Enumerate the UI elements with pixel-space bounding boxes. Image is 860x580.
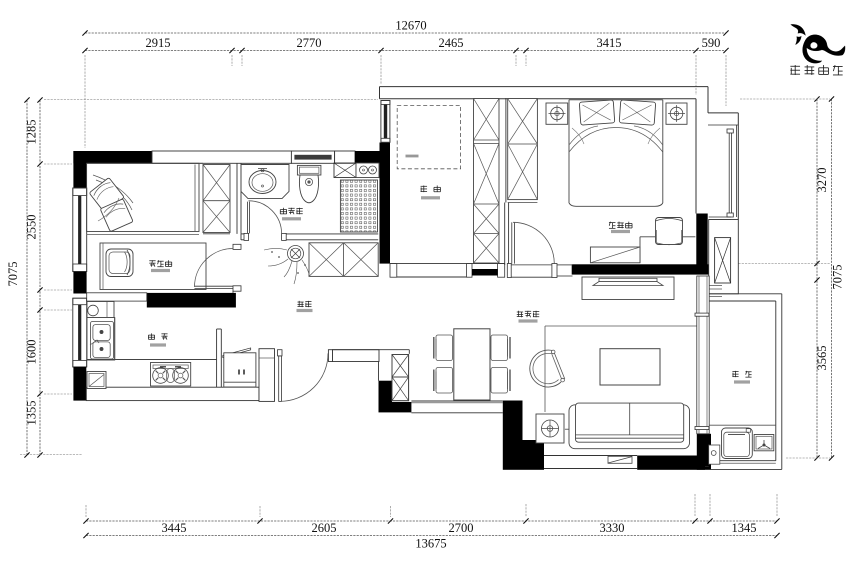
svg-text:3330: 3330 [600,521,625,535]
svg-text:3445: 3445 [162,521,187,535]
svg-text:2700: 2700 [449,521,474,535]
svg-text:7075: 7075 [831,265,845,290]
svg-text:2915: 2915 [146,36,171,50]
svg-text:3565: 3565 [815,346,829,371]
svg-text:1345: 1345 [732,521,757,535]
svg-text:13675: 13675 [415,537,446,551]
svg-text:2605: 2605 [312,521,337,535]
svg-text:3415: 3415 [597,36,622,50]
svg-text:2770: 2770 [297,36,322,50]
svg-text:2465: 2465 [439,36,464,50]
svg-text:12670: 12670 [395,19,426,33]
svg-text:7075: 7075 [6,262,20,287]
svg-text:3270: 3270 [815,168,829,193]
svg-text:590: 590 [702,36,721,50]
